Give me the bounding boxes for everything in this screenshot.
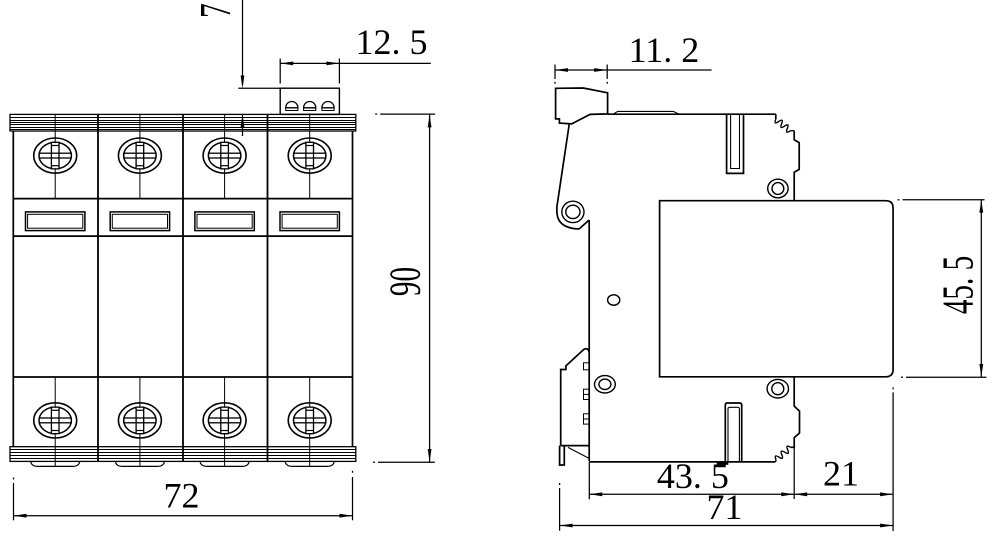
svg-text:71: 71 xyxy=(707,487,743,527)
svg-text:12. 5: 12. 5 xyxy=(356,22,428,62)
svg-text:7: 7 xyxy=(192,3,240,18)
svg-text:45. 5: 45. 5 xyxy=(935,256,983,314)
svg-text:90: 90 xyxy=(382,267,430,296)
svg-text:72: 72 xyxy=(164,476,200,516)
svg-text:21: 21 xyxy=(823,454,859,494)
svg-text:11. 2: 11. 2 xyxy=(629,30,700,70)
